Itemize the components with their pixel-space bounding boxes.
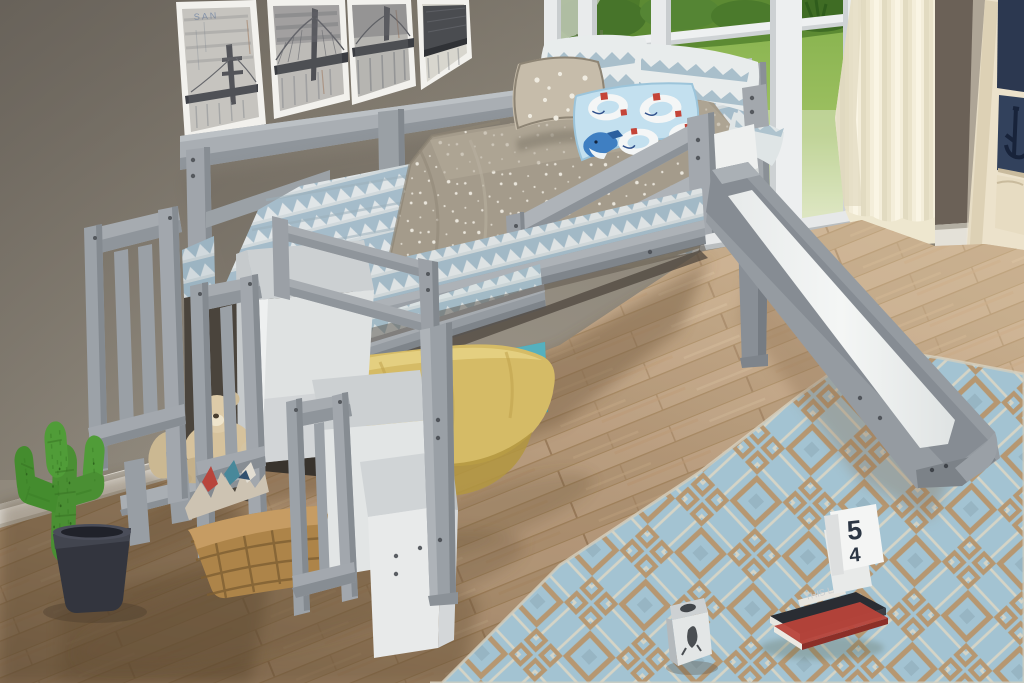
svg-text:5: 5 — [845, 515, 863, 546]
